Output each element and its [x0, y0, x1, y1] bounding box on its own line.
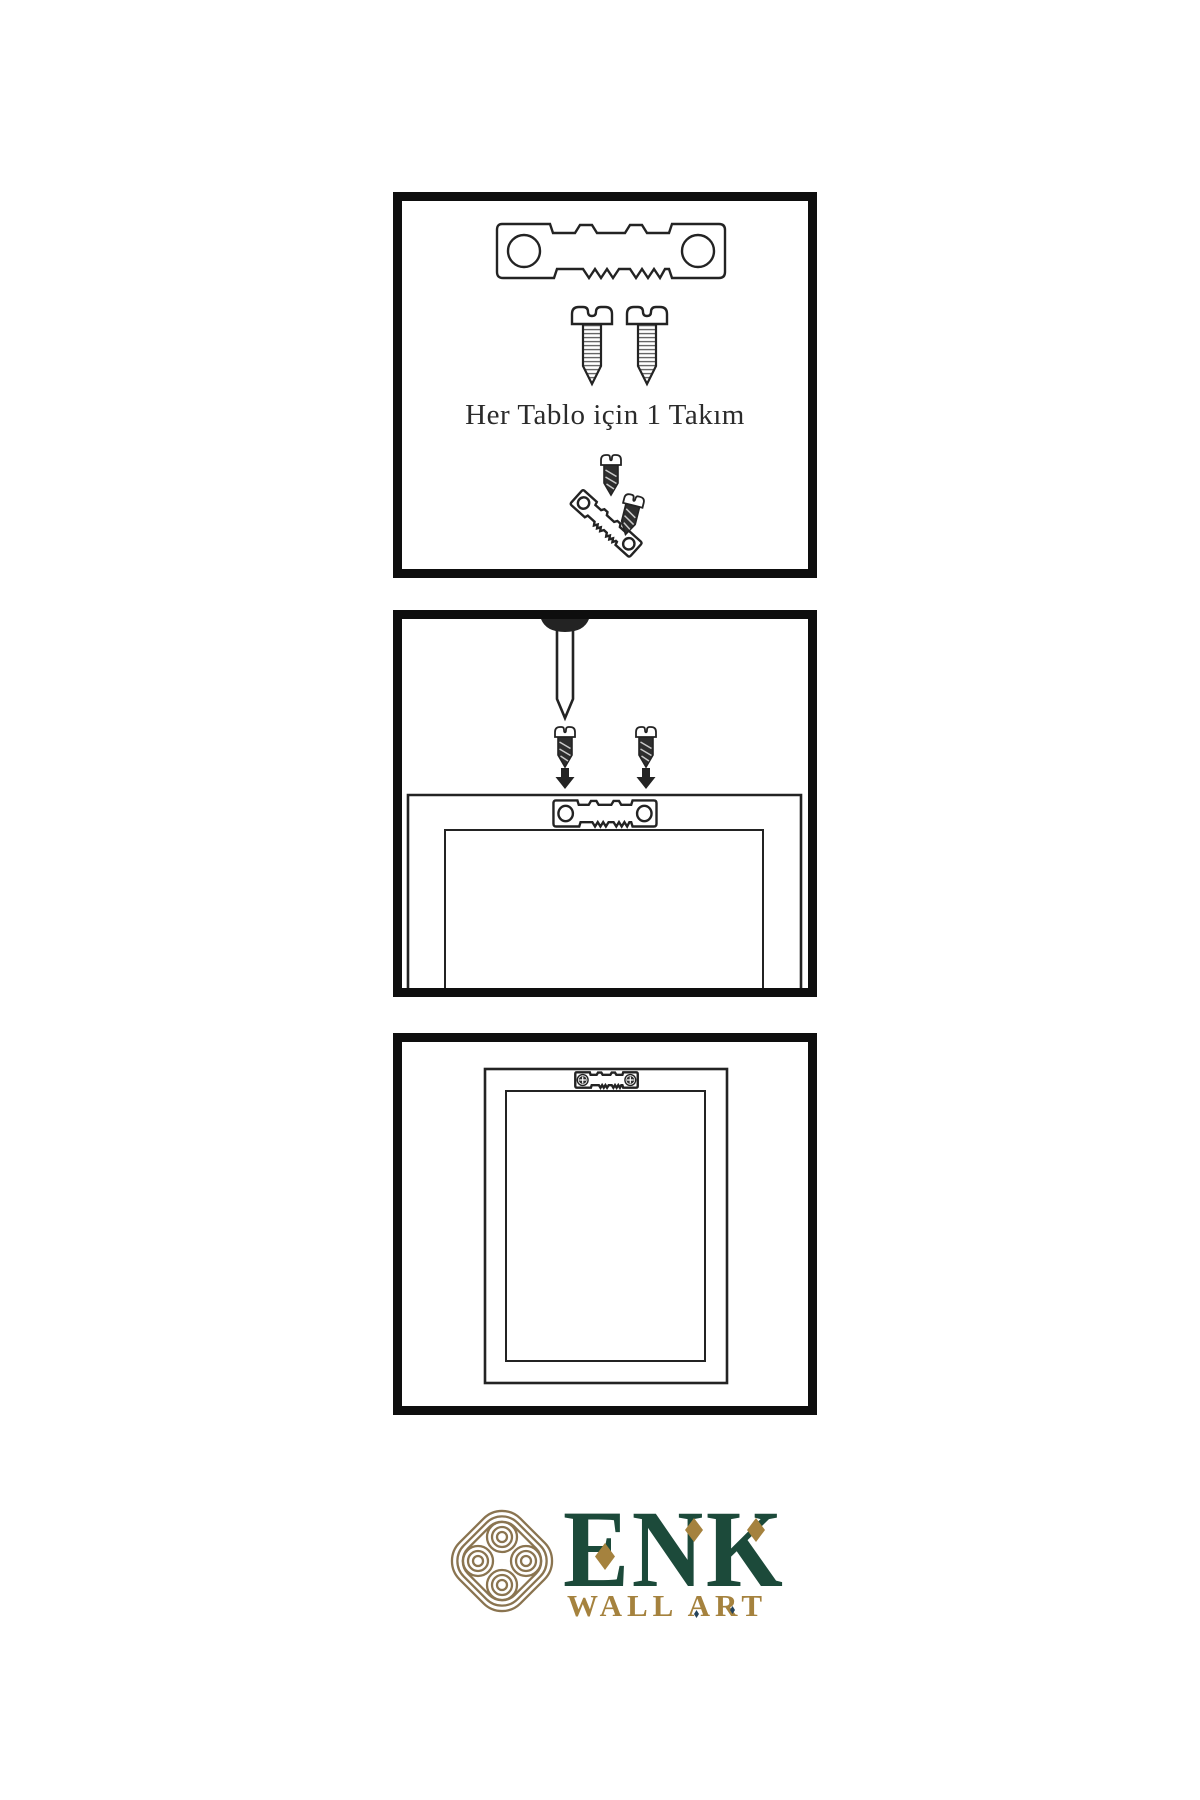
- small-screw-icon: [555, 727, 575, 767]
- hanging-instruction-sheet: Her Tablo için 1 Takım: [0, 0, 1200, 1800]
- kit-caption: Her Tablo için 1 Takım: [402, 399, 808, 432]
- panel-mount-hanger: [393, 610, 817, 997]
- arrow-down-icon: [637, 768, 656, 789]
- brand-subtitle: WALL ART: [567, 1589, 767, 1623]
- sawtooth-hanger-icon: [553, 800, 656, 826]
- picture-frame-inner-outline: [506, 1091, 705, 1361]
- screw-icon: [627, 307, 667, 384]
- small-screw-icon: [601, 455, 621, 495]
- phillips-screw-head-icon: [577, 1075, 588, 1086]
- hardware-kit-drawing: [402, 201, 808, 569]
- brand-knot-icon: [441, 1494, 563, 1628]
- frame-back-inner-outline: [445, 830, 763, 988]
- hung-frame-drawing: [402, 1042, 808, 1406]
- panel-hardware-kit: Her Tablo için 1 Takım: [393, 192, 817, 578]
- screw-icon: [572, 307, 612, 384]
- mounting-step-drawing: [402, 619, 808, 988]
- wall-nail-icon: [541, 619, 589, 718]
- panel-hung-frame: [393, 1033, 817, 1415]
- small-screw-icon: [636, 727, 656, 767]
- sawtooth-hanger-icon: [497, 224, 725, 278]
- picture-frame-outline: [485, 1069, 727, 1383]
- phillips-screw-head-icon: [625, 1075, 636, 1086]
- arrow-down-icon: [556, 768, 575, 789]
